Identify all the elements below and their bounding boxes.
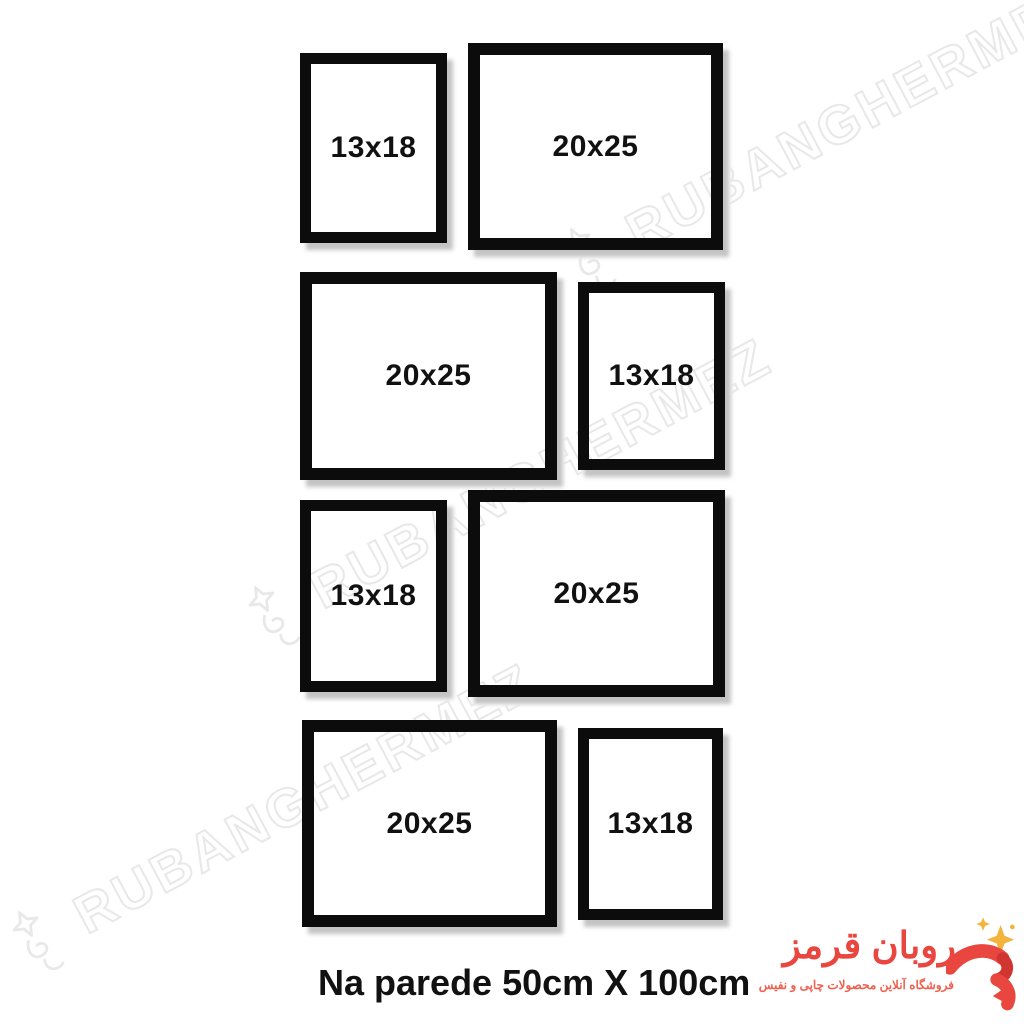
frame-13x18-row1-left: 13x18 xyxy=(300,53,447,243)
ribbon-doodle-watermark-icon xyxy=(4,890,87,983)
frame-20x25-row2-left: 20x25 xyxy=(300,272,557,480)
frame-size-label: 20x25 xyxy=(387,807,473,841)
frame-13x18-row2-right: 13x18 xyxy=(578,282,725,470)
frame-13x18-row4-right: 13x18 xyxy=(578,728,723,920)
sparkle-dot xyxy=(1010,925,1015,930)
brand-subtitle: فروشگاه آنلاین محصولات چاپی و نفیس xyxy=(759,978,954,992)
brand-logo: روبان قرمز فروشگاه آنلاین محصولات چاپی و… xyxy=(784,912,1020,1016)
frame-13x18-row3-left: 13x18 xyxy=(300,500,447,692)
frame-size-label: 20x25 xyxy=(553,130,639,164)
frame-size-label: 20x25 xyxy=(386,359,472,393)
wall-size-caption: Na parede 50cm X 100cm xyxy=(318,962,750,1004)
product-image-canvas: RUBANGHERMEZ RUBANGHERMEZ RUBANGHERMEZ 1… xyxy=(0,0,1024,1024)
frame-size-label: 13x18 xyxy=(608,807,694,841)
frame-size-label: 13x18 xyxy=(609,359,695,393)
frame-size-label: 13x18 xyxy=(331,131,417,165)
brand-title: روبان قرمز xyxy=(783,924,956,967)
frame-20x25-row4-left: 20x25 xyxy=(302,720,557,927)
red-ribbon-sparkles-icon xyxy=(946,912,1024,1016)
frame-20x25-row3-right: 20x25 xyxy=(468,490,725,697)
frame-size-label: 20x25 xyxy=(554,577,640,611)
frame-size-label: 13x18 xyxy=(331,579,417,613)
sparkle-small xyxy=(976,917,990,931)
frame-20x25-row1-right: 20x25 xyxy=(468,43,723,250)
